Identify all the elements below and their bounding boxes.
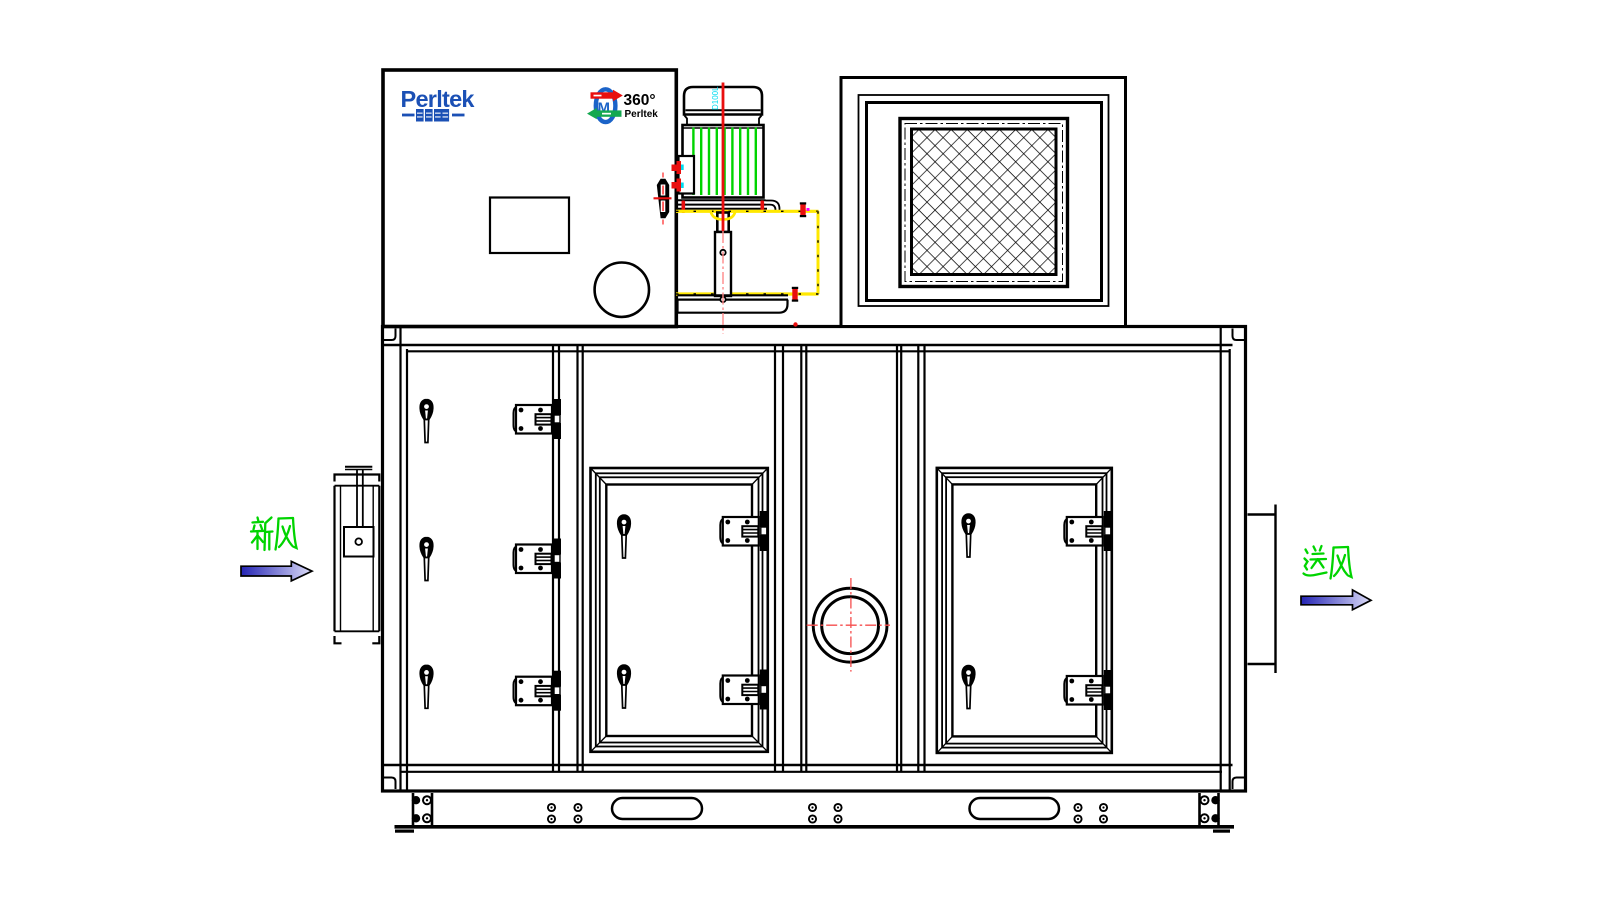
svg-text:Perltek: Perltek: [625, 109, 659, 120]
svg-text:360°: 360°: [624, 92, 656, 109]
svg-text:D100L: D100L: [711, 86, 720, 110]
svg-text:Perltek: Perltek: [401, 86, 476, 112]
